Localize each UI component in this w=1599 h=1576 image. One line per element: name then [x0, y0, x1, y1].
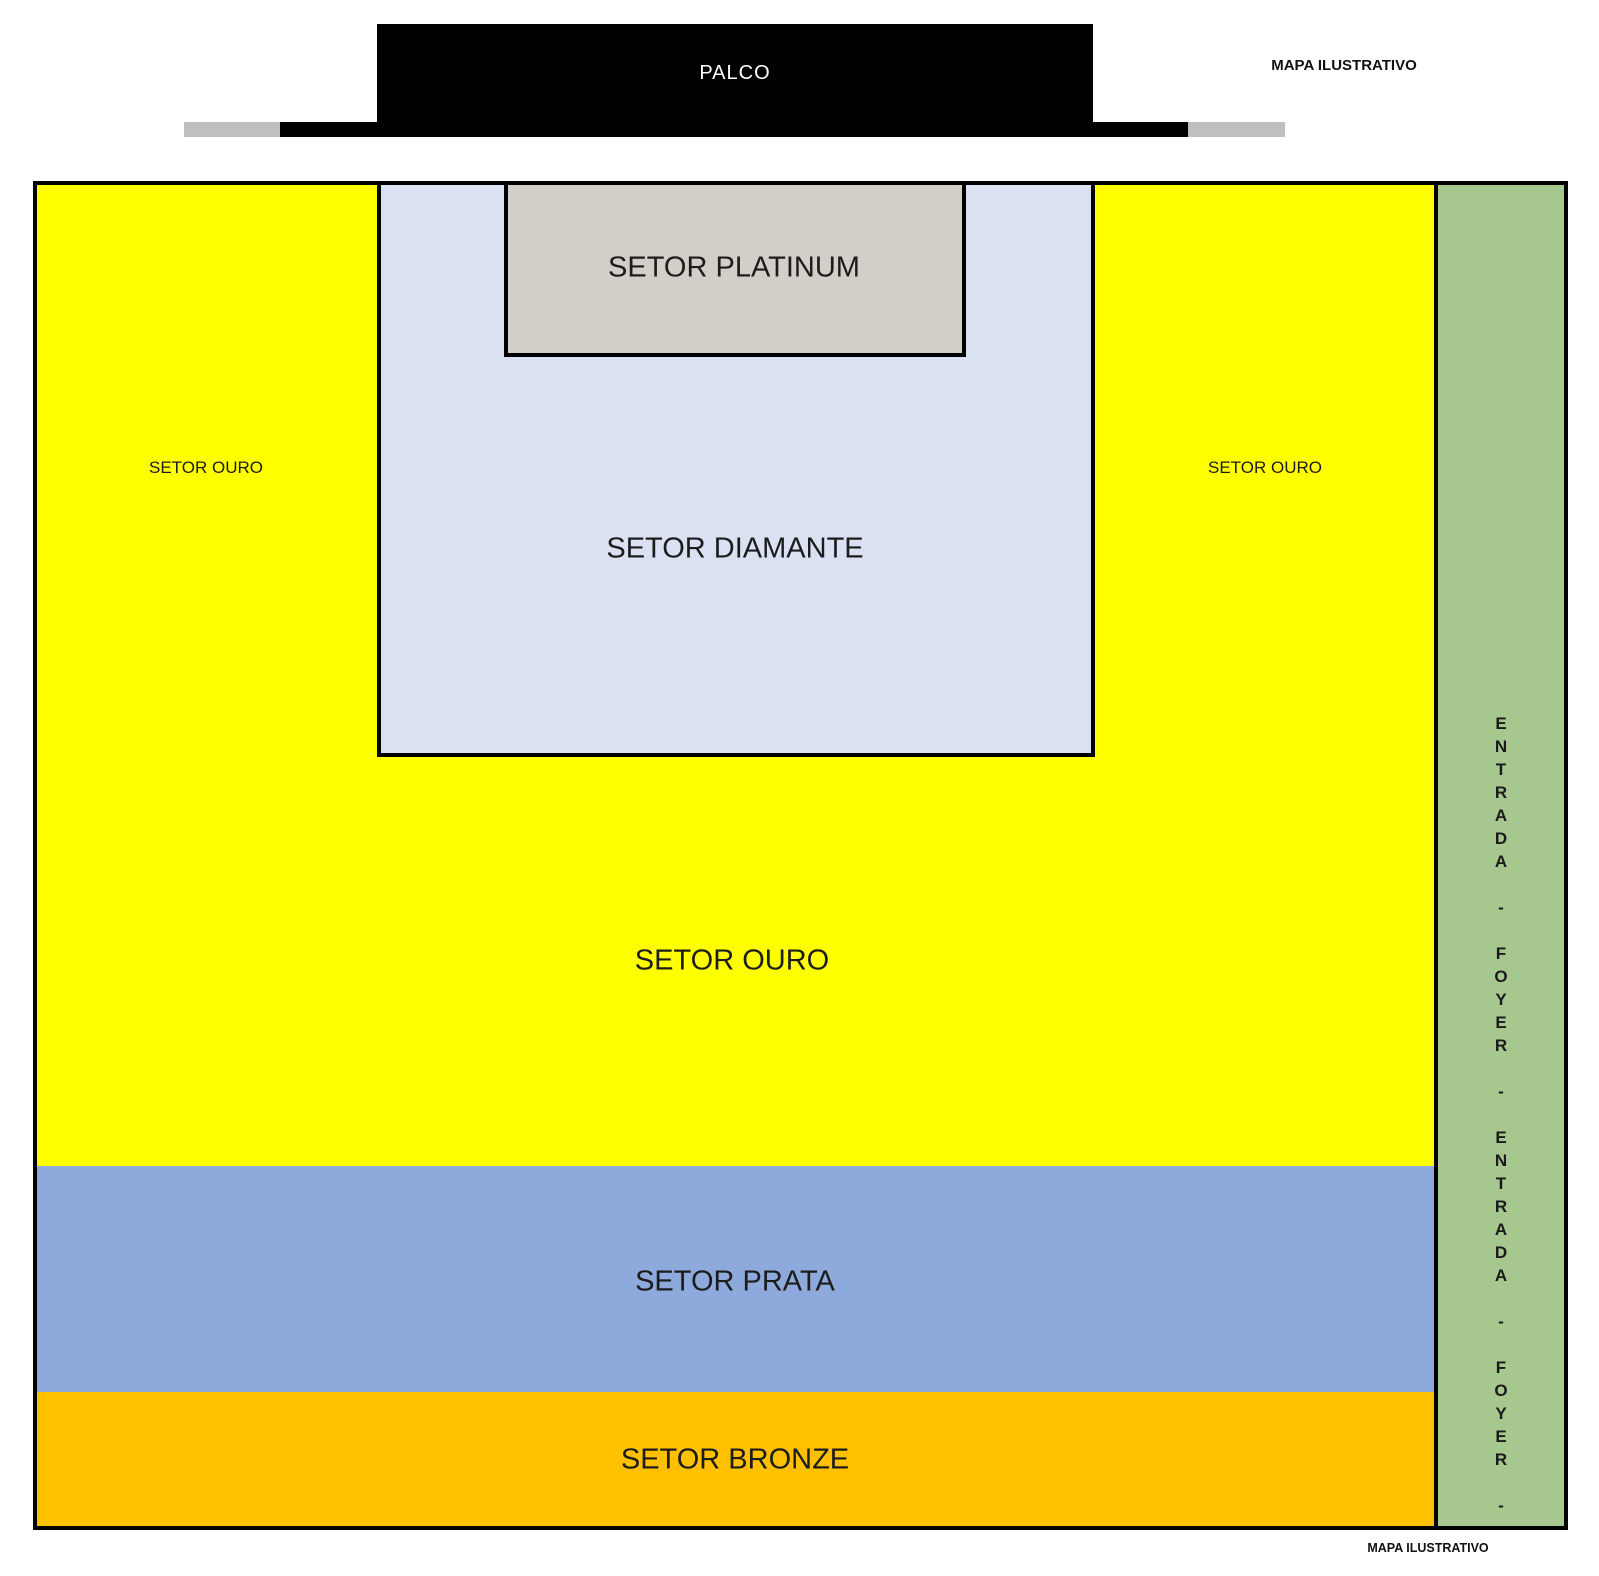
sector-ouro-label-main: SETOR OURO — [635, 945, 829, 978]
sector-platinum-label: SETOR PLATINUM — [608, 252, 860, 285]
sector-ouro-label-left: SETOR OURO — [149, 458, 263, 478]
stage-wing-left — [184, 122, 280, 137]
sector-prata-label: SETOR PRATA — [635, 1266, 835, 1299]
sector-ouro-label-right: SETOR OURO — [1208, 458, 1322, 478]
stage-apron-bar — [280, 122, 1188, 137]
map-title-bottom: MAPA ILUSTRATIVO — [1303, 1541, 1553, 1555]
venue-map: PALCO MAPA ILUSTRATIVO MAPA ILUSTRATIVO … — [0, 0, 1599, 1576]
stage-label: PALCO — [699, 62, 770, 85]
sector-bronze-label: SETOR BRONZE — [621, 1444, 849, 1477]
stage: PALCO — [377, 24, 1093, 122]
stage-wing-right — [1188, 122, 1285, 137]
sector-diamante-label: SETOR DIAMANTE — [606, 533, 863, 566]
map-title-top: MAPA ILUSTRATIVO — [1219, 57, 1469, 74]
entrance-foyer-vertical-label: ENTRADA - FOYER - ENTRADA - FOYER - — [1434, 712, 1568, 1517]
